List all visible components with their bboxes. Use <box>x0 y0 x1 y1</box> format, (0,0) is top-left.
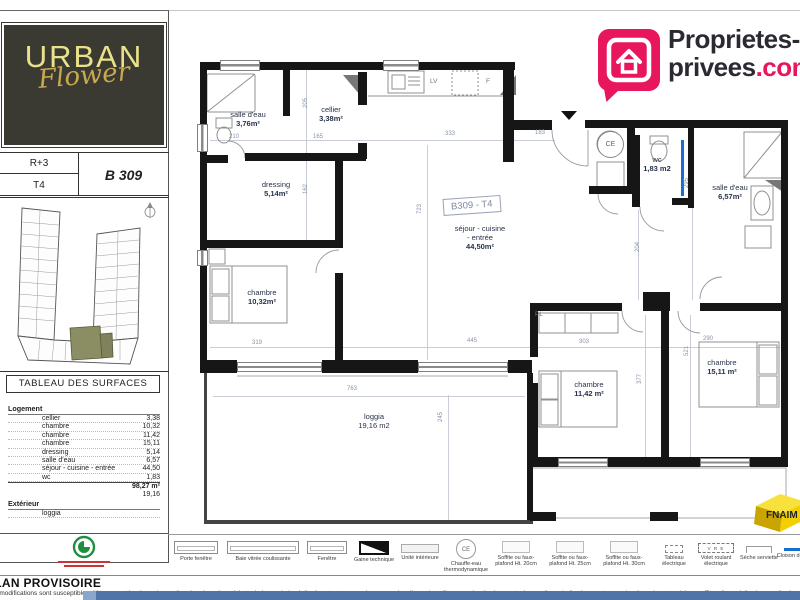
loggia-wall <box>204 520 533 524</box>
legend-item: Unité intérieure <box>396 541 444 561</box>
legend-item: CE Chauffe-eau thermodynamique <box>444 541 488 573</box>
lave-vaisselle-label: LV <box>430 78 437 85</box>
wall <box>530 512 556 521</box>
room-label-loggia: loggia19,16 m2 <box>336 412 412 430</box>
tableau-electrique-icon <box>665 545 683 553</box>
wall <box>358 72 367 105</box>
wall <box>335 160 343 245</box>
wall <box>503 62 514 162</box>
fenetre-icon <box>307 541 347 554</box>
placard-label: PL <box>535 311 543 318</box>
room-label-salle-deau-2: salle d'eau6,57m² <box>691 183 769 201</box>
gaine-technique-icon <box>359 541 389 555</box>
entrance-arrow-icon <box>561 111 577 120</box>
legend-item: Porte fenêtre <box>168 541 224 562</box>
wall <box>672 198 688 205</box>
room-label-chambre-3: chambre15,11 m² <box>684 358 760 376</box>
wall <box>200 360 237 373</box>
wall <box>200 240 343 248</box>
porte-fenetre-icon <box>174 541 218 554</box>
legend-item: Baie vitrée coulissante <box>224 541 302 562</box>
room-label-wc: wc1,83 m2 <box>631 155 683 173</box>
window <box>418 362 508 372</box>
loggia-wall <box>204 373 207 523</box>
wall <box>589 186 635 194</box>
dim-label: 303 <box>569 339 599 345</box>
scrollbar[interactable] <box>83 591 800 600</box>
window <box>197 124 208 152</box>
wall <box>510 120 552 130</box>
wall <box>508 360 532 373</box>
soffite-25-icon <box>556 541 584 553</box>
wall <box>781 128 788 465</box>
wall <box>700 303 788 311</box>
room-label-chambre-2: chambre11,42 m² <box>551 380 627 398</box>
dim-label: 295 <box>684 168 690 198</box>
cloison-demontable-icon <box>784 548 800 551</box>
wall <box>530 303 622 311</box>
room-label-sejour: séjour - cuisine- entrée44,50m² <box>438 224 522 251</box>
dim-label: 245 <box>438 402 444 432</box>
dim-label: 204 <box>635 232 641 262</box>
dim-label: 377 <box>637 364 643 394</box>
svg-text:FNAIM: FNAIM <box>766 510 798 521</box>
window <box>558 458 608 467</box>
seche-serviette-icon <box>746 546 772 553</box>
chauffe-eau-legend-icon: CE <box>456 539 476 559</box>
room-label-chambre-1: chambre10,32m² <box>224 288 300 306</box>
dim-label: 445 <box>457 338 487 344</box>
wall <box>661 311 669 461</box>
dim-label: 210 <box>219 134 249 140</box>
wall <box>650 512 678 521</box>
wall <box>335 273 343 363</box>
legend-item: Soffite ou faux-plafond Ht. 25cm <box>544 541 596 567</box>
window <box>220 60 260 71</box>
legend-item: Soffite ou faux-plafond Ht. 30cm <box>598 541 650 567</box>
plan-furniture <box>0 0 800 600</box>
dim-label: 763 <box>337 386 367 392</box>
scrollbar-handle[interactable] <box>83 591 96 600</box>
dim-label: 162 <box>303 174 309 204</box>
dim-label: 723 <box>417 194 423 224</box>
wall <box>200 155 228 163</box>
fnaim-logo: FNAIM <box>752 488 800 536</box>
dim-label: 205 <box>303 88 309 118</box>
wall <box>245 153 366 161</box>
legend-item: Fenêtre <box>304 541 350 562</box>
dim-label: 333 <box>435 131 465 137</box>
legend-item: Cloison démontable <box>776 541 800 559</box>
window <box>700 458 750 467</box>
dim-label: 290 <box>693 336 723 342</box>
baie-vitree-icon <box>227 541 299 554</box>
window <box>383 60 419 71</box>
soffite-30-icon <box>610 541 638 553</box>
volet-roulant-icon: V R E <box>698 543 734 553</box>
wall <box>585 120 788 128</box>
chauffe-eau-icon: CE <box>597 131 624 158</box>
window <box>197 250 208 266</box>
dim-label: 319 <box>242 340 272 346</box>
loggia-wall <box>527 373 533 520</box>
legend-item: V R E Volet roulant électrique <box>692 541 740 567</box>
legend-item: Sèche serviette <box>740 541 778 561</box>
dim-label: 165 <box>303 134 333 140</box>
floorplan-document: URBAN Flower R+3 T4 B 309 <box>0 0 800 600</box>
legend-item: Tableau électrique <box>652 541 696 567</box>
dim-label: 521 <box>684 336 690 366</box>
dim-label: 183 <box>525 130 555 136</box>
frigo-label: F <box>486 78 490 85</box>
room-label-salle-deau-1: salle d'eau3,76m² <box>210 110 286 128</box>
legend-item: Soffite ou faux-plafond Ht. 20cm <box>490 541 542 567</box>
wall <box>643 292 670 311</box>
window <box>237 362 322 372</box>
wall <box>322 360 418 373</box>
legend-item: Gaine technique <box>352 541 396 563</box>
soffite-20-icon <box>502 541 530 553</box>
wall <box>200 62 207 372</box>
plan-provisoire-title: PLAN PROVISOIRE <box>0 576 101 590</box>
unite-interieure-icon <box>401 544 439 553</box>
